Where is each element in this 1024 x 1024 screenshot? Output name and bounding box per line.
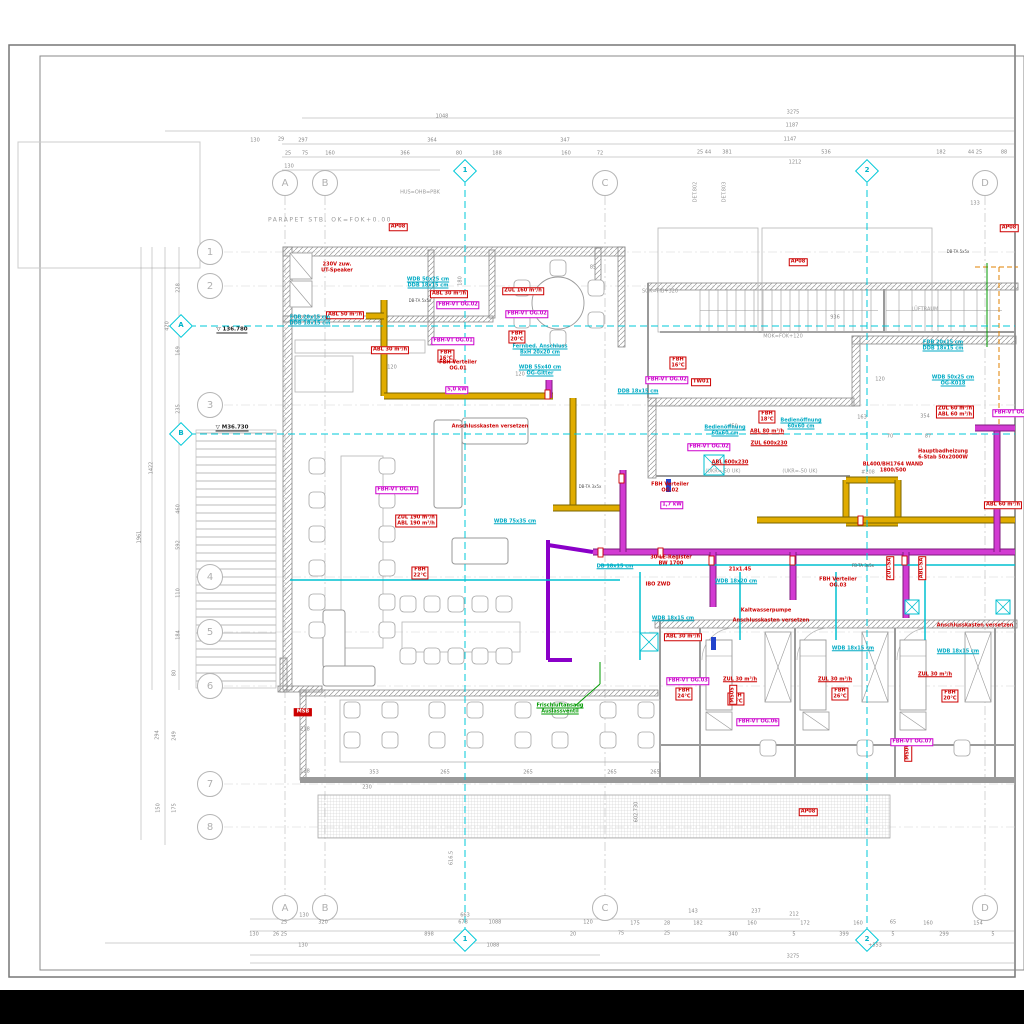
duct-size-label: WDB 18x15 cm bbox=[652, 616, 694, 622]
note-red: Anschlusskasten versetzen bbox=[937, 623, 1014, 629]
duct-size-label: Bedienöffnung60x60 cm bbox=[780, 419, 821, 430]
note-red: 30-LE-RegisterBW 1700 bbox=[650, 556, 691, 567]
grid-bubble-col: A bbox=[272, 170, 298, 196]
dimension-text: 297 bbox=[298, 138, 308, 144]
dimension-text: 65 bbox=[890, 920, 896, 926]
section-marker-label: A bbox=[178, 322, 183, 330]
dimension-text: 265 bbox=[607, 770, 617, 776]
grid-bubble-row: 2 bbox=[197, 273, 223, 299]
dimension-text: 188 bbox=[492, 151, 502, 157]
dimension-text: 5 bbox=[891, 932, 894, 938]
grid-bubble-col: D bbox=[972, 170, 998, 196]
note-red: Kaltwasserpumpe bbox=[741, 608, 791, 614]
dimension-text: 1088 bbox=[489, 920, 502, 926]
note-gray: DET.803 bbox=[722, 182, 728, 203]
grid-bubble-row: 1 bbox=[197, 239, 223, 265]
dimension-text: 175 bbox=[630, 921, 640, 927]
dimension-text: 366 bbox=[400, 151, 410, 157]
airflow-label: TW01 bbox=[691, 378, 711, 386]
duct-size-label: DDB 18x15 cm bbox=[618, 389, 659, 395]
fbh-circuit-label: FBH-VT OG.07 bbox=[890, 738, 933, 746]
duct-size-label: Fernbed. AnschlussBxH 20x20 cm bbox=[513, 345, 568, 356]
dimension-text: 80 bbox=[172, 670, 178, 676]
dimension-text: 130 bbox=[284, 164, 294, 170]
note-red: 230V zuw.UT-Speaker bbox=[321, 263, 353, 274]
control-box-label: MSB bbox=[294, 708, 312, 716]
dimension-text: 265 bbox=[523, 770, 533, 776]
level-marker: ▽ M36.730 bbox=[216, 424, 249, 431]
dimension-text: 28 bbox=[664, 921, 670, 927]
airflow-label: FBH26°C bbox=[831, 688, 848, 701]
note-red: FBH VerteilerOG.03 bbox=[819, 578, 857, 589]
grid-bubble-row: 7 bbox=[197, 771, 223, 797]
fresh-air-label: FrischluftansaugAuslassventil bbox=[536, 704, 583, 715]
dimension-text: 212 bbox=[789, 912, 799, 918]
duct-size-label: WDB 55x40 cmOG-Gitter bbox=[519, 366, 561, 377]
note-red: 21x1.45 bbox=[729, 567, 752, 573]
component-tag: DB-TA 5x5x bbox=[409, 299, 432, 303]
duct-dimension-label: ZUL 600x230 bbox=[751, 441, 788, 447]
airflow-label: ABL 60 m³/h bbox=[984, 501, 1022, 509]
airflow-label: ABL 30 m³/h bbox=[664, 633, 702, 641]
component-tag: DB-TA 3x5x bbox=[579, 485, 602, 489]
dimension-text: 72 bbox=[597, 151, 603, 157]
fbh-circuit-label: FBH-VT OG.06 bbox=[736, 718, 779, 726]
dimension-text: 678 bbox=[458, 920, 468, 926]
dimension-text: 184 bbox=[176, 630, 182, 640]
dimension-text: 460 bbox=[176, 504, 182, 514]
dimension-text: 353 bbox=[369, 770, 379, 776]
dimension-text: 87 bbox=[925, 434, 931, 440]
dimension-text: 663 bbox=[460, 913, 470, 919]
duct-size-label: WDB 18x15 cm bbox=[832, 646, 874, 652]
grid-bubble-row: 6 bbox=[197, 673, 223, 699]
airflow-label: FBH20°C bbox=[508, 331, 525, 344]
dimension-text: 294 bbox=[155, 730, 161, 740]
fbh-circuit-label: FBH-VT OG.03 bbox=[666, 677, 709, 685]
duct-size-label: WDB 18x15 cm bbox=[937, 649, 979, 655]
dimension-text: 182 bbox=[936, 150, 946, 156]
airflow-label: FBH18°C bbox=[758, 411, 775, 424]
grid-bubble-col: D bbox=[972, 895, 998, 921]
dimension-text: 3275 bbox=[787, 954, 800, 960]
airflow-label: FBH24°C bbox=[675, 688, 692, 701]
dimension-text: 70 bbox=[887, 434, 893, 440]
section-marker-label: 1 bbox=[463, 936, 468, 944]
airflow-label: ZUL 60 m³/hABL 60 m³/h bbox=[936, 406, 974, 419]
note-red: Anschlusskasten versetzen bbox=[452, 424, 529, 430]
dimension-text: 420 bbox=[165, 321, 171, 331]
annotation-layer: 1122ABAABBCCDD12345678▽ 136.780▽ M36.730… bbox=[0, 0, 1024, 1024]
dimension-text: 1212 bbox=[789, 160, 802, 166]
note-red: BL400/BH1764 WAND1800/500 bbox=[863, 463, 923, 474]
dimension-text: 936 bbox=[830, 315, 840, 321]
dimension-text: 160 bbox=[853, 921, 863, 927]
airflow-label: AP08 bbox=[389, 223, 408, 231]
fbh-circuit-label: FBH-VT OG.01 bbox=[431, 337, 474, 345]
grid-bubble-col: A bbox=[272, 895, 298, 921]
duct-size-label: FDB 20x15 cmDDB 18x15 cm bbox=[290, 316, 331, 327]
dimension-text: 1147 bbox=[784, 137, 797, 143]
dimension-text: 172 bbox=[800, 921, 810, 927]
airflow-label: ZUL 160 m³/h bbox=[502, 287, 544, 295]
section-marker-label: 1 bbox=[463, 167, 468, 175]
dimension-text: 160 bbox=[561, 151, 571, 157]
note-red: Anschlusskasten versetzen bbox=[733, 618, 810, 624]
note-red: Hauptbadheizung6-Stab 50x2000W bbox=[918, 450, 968, 461]
dimension-text: 128 bbox=[300, 769, 310, 775]
airflow-label: ZUL 190 m³/hABL 190 m³/h bbox=[395, 515, 437, 528]
note-gray: (UKR=-50 UK) bbox=[705, 469, 740, 475]
grid-bubble-row: 5 bbox=[197, 619, 223, 645]
dimension-text: 130 bbox=[250, 138, 260, 144]
dimension-text: 399 bbox=[839, 932, 849, 938]
dimension-text: 26 25 bbox=[273, 932, 287, 938]
dimension-text: 130 bbox=[299, 913, 309, 919]
dimension-text: 160 bbox=[747, 921, 757, 927]
fbh-circuit-label: FBH-VT OG.02 bbox=[505, 310, 548, 318]
duct-size-label: Bedienöffnung60x60 cm bbox=[704, 426, 745, 437]
note-gray: (UKR=-50 UK) bbox=[782, 469, 817, 475]
dimension-text: 228 bbox=[176, 283, 182, 293]
note-red: IBO ZWD bbox=[646, 582, 671, 588]
dimension-text: 1961 bbox=[137, 531, 143, 544]
dimension-text: 44 25 bbox=[968, 150, 982, 156]
duct-size-label: FDB 20x15 cmDDB 18x15 cm bbox=[923, 341, 964, 352]
dimension-text: 5 bbox=[991, 932, 994, 938]
dimension-text: 85 bbox=[590, 265, 596, 271]
dimension-text: 364 bbox=[427, 138, 437, 144]
dimension-text: 616.5 bbox=[449, 851, 455, 865]
dimension-text: 154 bbox=[973, 921, 983, 927]
component-tag: DB-TA 5x5x bbox=[947, 250, 970, 254]
dimension-text: 381 bbox=[722, 150, 732, 156]
grid-bubble-col: B bbox=[312, 895, 338, 921]
dimension-text: 75 bbox=[618, 931, 624, 937]
dimension-text: 218 bbox=[300, 727, 310, 733]
airflow-label: FBH16°C bbox=[669, 357, 686, 370]
duct-dimension-label: ABL 600x230 bbox=[712, 460, 749, 466]
dimension-text: 160 bbox=[923, 921, 933, 927]
grid-bubble-col: C bbox=[592, 170, 618, 196]
dimension-text: 169 bbox=[176, 346, 182, 356]
dimension-text: 265 bbox=[440, 770, 450, 776]
fbh-circuit-label: FBH-VT OG.01 bbox=[375, 486, 418, 494]
riser-label: ABL-SA bbox=[918, 556, 926, 580]
airflow-label: ABL 30 m³/h bbox=[371, 346, 409, 354]
dimension-text: 340 bbox=[728, 932, 738, 938]
dimension-text: 20 bbox=[570, 932, 576, 938]
note-gray: PARAPET STB. OK=FOK+0.00 bbox=[268, 218, 392, 225]
section-marker-label: B bbox=[178, 430, 183, 438]
dimension-text: 1187 bbox=[786, 123, 799, 129]
airflow-label: AP08 bbox=[799, 808, 818, 816]
dimension-text: 182 bbox=[693, 921, 703, 927]
airflow-label: ABL 50 m³/h bbox=[326, 311, 364, 319]
dimension-text: 175 bbox=[172, 803, 178, 813]
fbh-circuit-label: FBH-VT OG.02 bbox=[687, 443, 730, 451]
dimension-text: 1088 bbox=[487, 943, 500, 949]
airflow-label: AP08 bbox=[789, 258, 808, 266]
grid-bubble-col: B bbox=[312, 170, 338, 196]
note-gray: SOK=FIB+320 bbox=[642, 289, 678, 295]
dimension-text: 130 bbox=[249, 932, 259, 938]
dimension-text: 180 bbox=[458, 276, 464, 286]
dimension-text: 110 bbox=[176, 588, 182, 598]
airflow-label: FBH22°C bbox=[411, 567, 428, 580]
note-gray: LÜFTRAUM bbox=[912, 307, 939, 313]
duct-size-label: DB 18x15 cm bbox=[597, 564, 634, 570]
dimension-text: 130 bbox=[298, 943, 308, 949]
dimension-text: 3275 bbox=[787, 110, 800, 116]
duct-dimension-label: ZUL 30 m³/h bbox=[818, 677, 852, 683]
duct-size-label: WDB 75x35 cm bbox=[494, 519, 536, 525]
riser-label: MS05 bbox=[729, 685, 737, 705]
dimension-text: 25 bbox=[281, 920, 287, 926]
dimension-text: 1048 bbox=[436, 114, 449, 120]
dimension-text: 230 bbox=[362, 785, 372, 791]
section-marker-label: 2 bbox=[865, 167, 870, 175]
dimension-text: 235 bbox=[176, 404, 182, 414]
dimension-text: 320 bbox=[318, 920, 328, 926]
grid-bubble-col: C bbox=[592, 895, 618, 921]
fbh-circuit-label: FBH-VT OG.02 bbox=[645, 376, 688, 384]
dimension-text: 299 bbox=[939, 932, 949, 938]
dimension-text: 120 bbox=[875, 377, 885, 383]
dimension-text: 160 bbox=[325, 151, 335, 157]
note-gray: DET.802 bbox=[693, 182, 699, 203]
duct-size-label: WDB 18x20 cm bbox=[715, 579, 757, 585]
dimension-text: 5 bbox=[792, 932, 795, 938]
dimension-text: 133 bbox=[970, 201, 980, 207]
dimension-text: 75 bbox=[302, 151, 308, 157]
fbh-circuit-label: 1,7 kW bbox=[660, 501, 683, 509]
dimension-text: 898 bbox=[424, 932, 434, 938]
duct-dimension-label: ZUL 30 m³/h bbox=[723, 677, 757, 683]
note-gray: MOK=FOK+120 bbox=[763, 334, 803, 340]
dimension-text: 354 bbox=[920, 414, 930, 420]
note-gray: HUS=OHB=PBK bbox=[400, 190, 440, 196]
dimension-text: 120 bbox=[583, 920, 593, 926]
dimension-text: 29 bbox=[278, 137, 284, 143]
dimension-text: 347 bbox=[560, 138, 570, 144]
dimension-text: 88 bbox=[1001, 150, 1007, 156]
dimension-text: 249 bbox=[172, 731, 178, 741]
dimension-text: 80 bbox=[456, 151, 462, 157]
level-marker: ▽ 136.780 bbox=[216, 326, 247, 333]
dimension-text: 143 bbox=[688, 909, 698, 915]
duct-size-label: WDB 50x25 cmDDB 18x15 cm bbox=[407, 278, 449, 289]
fbh-circuit-label: 5,0 kW bbox=[445, 386, 468, 394]
grid-bubble-row: 3 bbox=[197, 392, 223, 418]
duct-dimension-label: ZUL 30 m³/h bbox=[918, 672, 952, 678]
airflow-label: AP08 bbox=[1000, 224, 1019, 232]
airflow-label: FBH20°C bbox=[941, 690, 958, 703]
grid-bubble-row: 4 bbox=[197, 564, 223, 590]
dimension-text: 120 bbox=[387, 365, 397, 371]
dimension-text: 265 bbox=[650, 770, 660, 776]
dimension-text: 592 bbox=[176, 540, 182, 550]
dimension-text: 536 bbox=[821, 150, 831, 156]
fbh-circuit-label: FBH-VT OG.02 bbox=[436, 301, 479, 309]
dimension-text: +553 bbox=[868, 943, 882, 949]
dimension-text: 25 44 bbox=[697, 150, 711, 156]
fbh-circuit-label: FBH-VT OG.04 bbox=[992, 409, 1024, 417]
riser-label: ZUL-SA bbox=[886, 556, 894, 580]
note-red: FBH VerteilerOG.02 bbox=[651, 483, 689, 494]
dimension-text: 163 bbox=[857, 415, 867, 421]
component-tag: FB-TA 3x5x bbox=[852, 564, 874, 568]
dimension-text: 237 bbox=[751, 909, 761, 915]
dimension-text: 25 bbox=[285, 151, 291, 157]
duct-size-label: WDB 50x25 cmOG-K018 bbox=[932, 376, 974, 387]
dimension-text: 1422 bbox=[149, 462, 155, 475]
duct-dimension-label: ABL 80 m³/h bbox=[750, 429, 784, 435]
dimension-text: 150 bbox=[156, 803, 162, 813]
letterbox-bottom bbox=[0, 990, 1024, 1024]
dimension-text: 25 bbox=[664, 931, 670, 937]
airflow-label: ABL 30 m³/h bbox=[430, 290, 468, 298]
dimension-text: 602.730 bbox=[634, 802, 640, 823]
grid-bubble-row: 8 bbox=[197, 814, 223, 840]
cad-sheet: 1122ABAABBCCDD12345678▽ 136.780▽ M36.730… bbox=[0, 0, 1024, 1024]
note-red: FBH VerteilerOG.01 bbox=[439, 361, 477, 372]
